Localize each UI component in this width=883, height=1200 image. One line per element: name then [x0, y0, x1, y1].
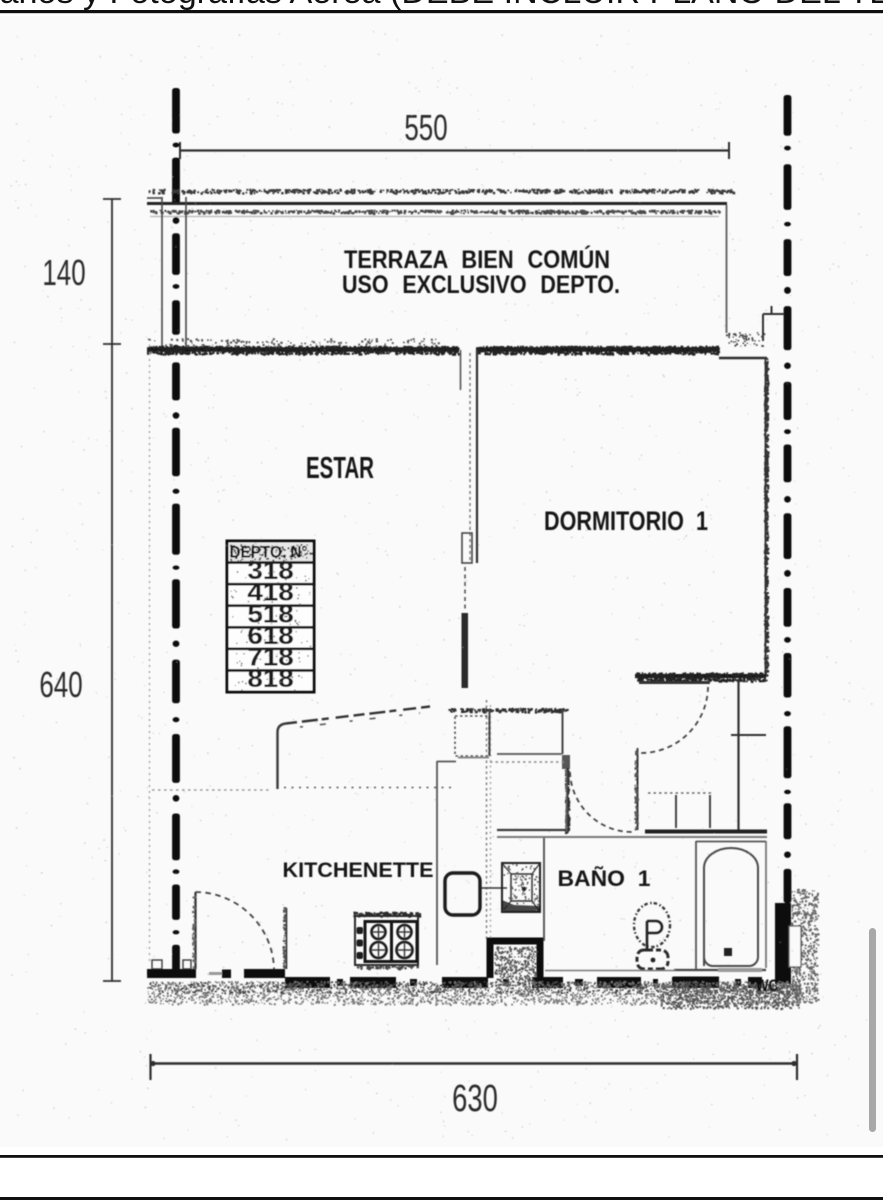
- svg-text:550: 550: [404, 108, 447, 148]
- svg-text:USO EXCLUSIVO DEPTO.: USO EXCLUSIVO DEPTO.: [342, 271, 620, 299]
- svg-text:818: 818: [247, 665, 293, 693]
- svg-text:lanos y Fotografías Aérea (DEB: lanos y Fotografías Aérea (DEBE INCLUIR …: [0, 0, 883, 10]
- svg-text:BAÑO 1: BAÑO 1: [558, 866, 651, 891]
- svg-text:WC: WC: [756, 977, 779, 996]
- svg-text:TERRAZA BIEN COMÚN: TERRAZA BIEN COMÚN: [344, 244, 610, 274]
- svg-text:630: 630: [452, 1078, 498, 1120]
- svg-text:ESTAR: ESTAR: [306, 450, 374, 485]
- svg-text:640: 640: [39, 665, 82, 705]
- svg-text:DORMITORIO 1: DORMITORIO 1: [544, 506, 708, 536]
- svg-text:140: 140: [42, 253, 85, 293]
- svg-text:KITCHENETTE: KITCHENETTE: [283, 859, 434, 882]
